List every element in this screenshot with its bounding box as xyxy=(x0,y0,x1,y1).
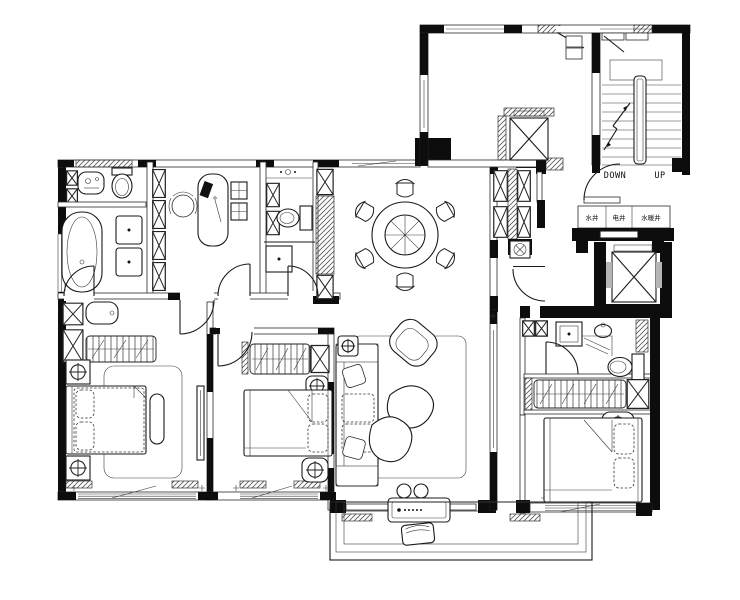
curtain-box xyxy=(342,514,372,521)
floor-plan-canvas: DOWN UP 水井 电井 水暖井 xyxy=(0,0,740,600)
shower xyxy=(582,336,612,356)
bedroom-3 xyxy=(524,378,649,502)
dining-table xyxy=(372,202,438,268)
hall-door xyxy=(513,267,545,302)
armchair xyxy=(384,314,442,371)
entry-hall xyxy=(498,33,584,160)
stair-rail xyxy=(634,76,646,164)
shaft-water-label: 水井 xyxy=(586,213,600,222)
stairs-up-label: UP xyxy=(654,171,665,181)
floor-lamp xyxy=(338,336,358,356)
double-bed xyxy=(66,386,146,454)
shaft-heating-label: 水暖井 xyxy=(641,213,661,222)
vanity-sinks xyxy=(116,216,142,276)
stairwell: DOWN UP xyxy=(602,36,681,181)
second-bathroom xyxy=(264,170,315,273)
nightstand xyxy=(66,360,90,384)
master-bedroom xyxy=(63,302,204,480)
dining-area xyxy=(352,180,458,291)
dresser xyxy=(86,302,118,324)
toilet xyxy=(277,206,312,230)
landing-entry-door xyxy=(584,164,620,203)
wardrobe-rod xyxy=(534,380,626,408)
stool xyxy=(414,484,428,498)
study xyxy=(153,170,247,291)
wash-basin xyxy=(595,323,612,338)
elevator-1 xyxy=(498,108,554,160)
sofa xyxy=(336,344,378,486)
wardrobe-rod xyxy=(250,344,310,374)
bed xyxy=(544,418,642,502)
master-bathroom xyxy=(58,168,146,292)
vanity xyxy=(556,322,582,346)
stairs-down-label: DOWN xyxy=(604,171,626,181)
floor-plan-page: DOWN UP 水井 电井 水暖井 xyxy=(0,0,740,600)
hall-corridor-cabinet xyxy=(494,169,532,258)
elevator-2 xyxy=(594,242,672,314)
toilet xyxy=(112,168,132,198)
wardrobe-rod xyxy=(86,336,156,362)
bed-bench xyxy=(150,394,164,444)
lamp-table xyxy=(302,458,328,482)
study-desk xyxy=(198,174,228,246)
stool xyxy=(397,484,411,498)
study-cabinet-column xyxy=(153,170,166,291)
lounge-chairs xyxy=(369,386,433,462)
bed xyxy=(244,390,332,456)
tv-board xyxy=(197,386,204,460)
bathroom3-door xyxy=(546,342,578,374)
curtain-box xyxy=(510,514,540,521)
piano-bench xyxy=(401,522,435,545)
nightstand xyxy=(66,456,90,480)
bedroom-2 xyxy=(242,342,332,482)
office-chair xyxy=(169,192,197,217)
hall-shelf xyxy=(566,36,582,47)
shaft-electric-label: 电井 xyxy=(613,213,627,222)
side-tables xyxy=(231,182,247,220)
duct-shaft-column xyxy=(316,169,334,298)
living-room xyxy=(336,314,466,522)
vanity-basin xyxy=(78,172,104,194)
bathroom-3 xyxy=(523,320,648,380)
